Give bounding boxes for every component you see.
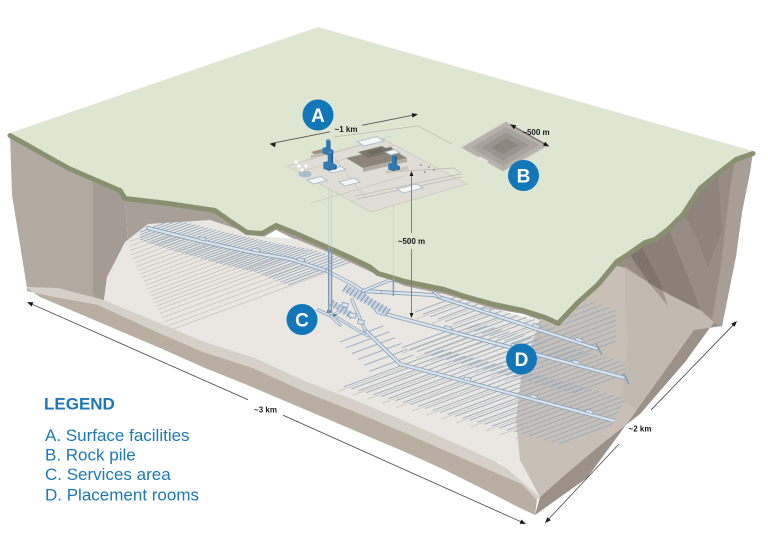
svg-text:D. Placement rooms: D. Placement rooms [45, 485, 199, 504]
svg-text:C: C [295, 311, 309, 332]
svg-text:A. Surface facilities: A. Surface facilities [45, 426, 190, 445]
svg-text:D: D [515, 350, 529, 371]
svg-text:LEGEND: LEGEND [44, 395, 115, 414]
svg-text:C. Services area: C. Services area [45, 465, 171, 484]
svg-text:~1 km: ~1 km [335, 125, 358, 134]
svg-text:~500 m: ~500 m [398, 237, 425, 246]
svg-text:~2 km: ~2 km [629, 425, 652, 434]
svg-text:A: A [311, 106, 325, 127]
svg-text:~3 km: ~3 km [254, 406, 277, 415]
svg-text:B: B [517, 167, 531, 188]
svg-text:~500 m: ~500 m [522, 128, 549, 137]
svg-text:B. Rock pile: B. Rock pile [45, 446, 136, 465]
